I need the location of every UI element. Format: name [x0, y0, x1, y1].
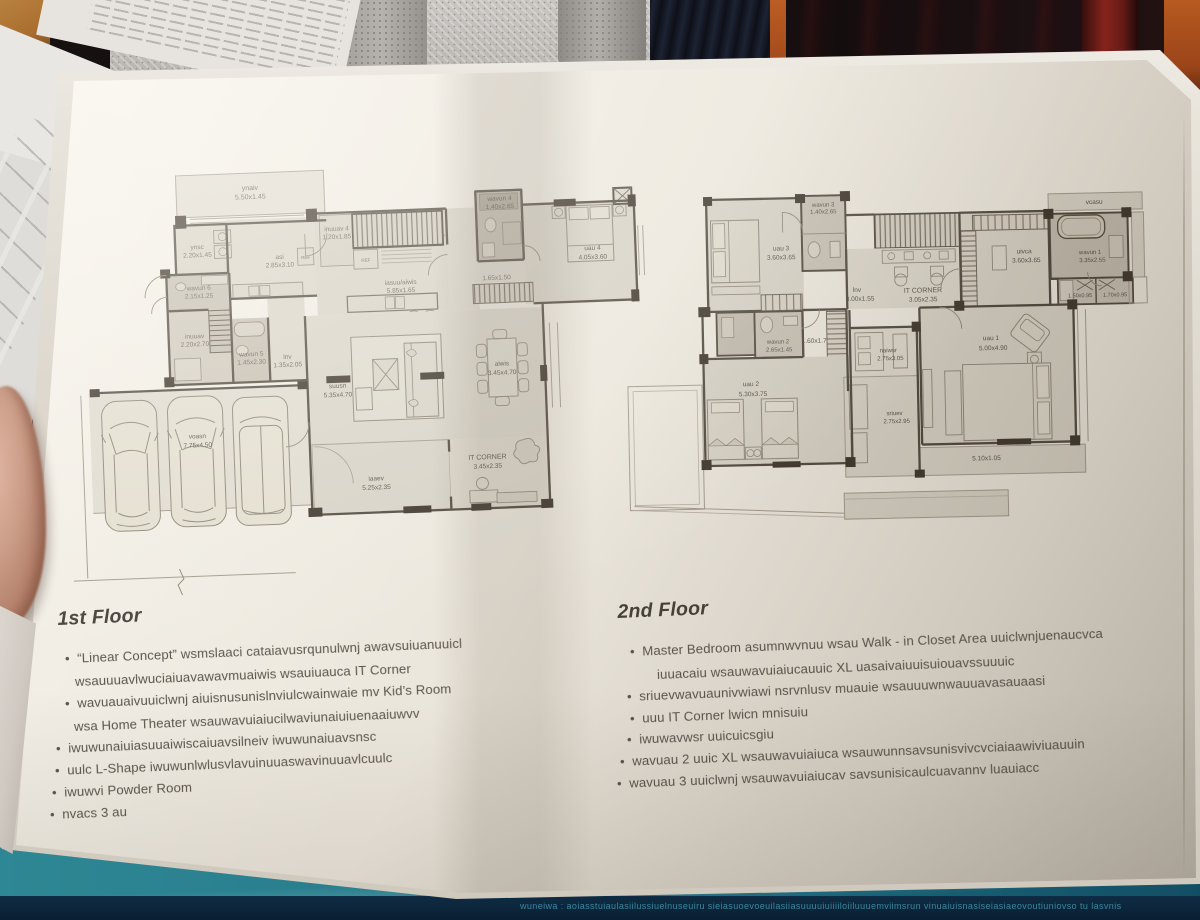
svg-text:suusn: suusn	[329, 383, 347, 391]
svg-text:REF: REF	[361, 258, 370, 263]
svg-text:ynsc: ynsc	[190, 244, 204, 252]
svg-text:3.35x2.55: 3.35x2.55	[1079, 258, 1106, 265]
svg-text:5.10x1.05: 5.10x1.05	[972, 455, 1001, 463]
svg-text:2.20x1.45: 2.20x1.45	[183, 252, 212, 260]
svg-text:4.05x3.60: 4.05x3.60	[578, 253, 607, 261]
svg-text:3.05x2.35: 3.05x2.35	[909, 296, 938, 304]
svg-text:ynaiv: ynaiv	[242, 185, 259, 193]
svg-text:uau 1: uau 1	[983, 335, 1000, 342]
svg-text:5.50x1.45: 5.50x1.45	[235, 193, 266, 201]
svg-text:1.60x1.70: 1.60x1.70	[802, 337, 831, 345]
svg-text:3.00x1.55: 3.00x1.55	[846, 296, 875, 304]
svg-text:uau 3: uau 3	[773, 245, 790, 252]
svg-text:5.25x2.35: 5.25x2.35	[362, 484, 391, 492]
svg-text:uivca: uivca	[1017, 248, 1033, 255]
svg-text:2.65x1.45: 2.65x1.45	[766, 347, 793, 354]
svg-text:lnv: lnv	[853, 287, 862, 294]
svg-text:2.85x3.10: 2.85x3.10	[266, 261, 295, 269]
svg-text:IT CORNER: IT CORNER	[468, 453, 507, 461]
svg-text:1.40x2.65: 1.40x2.65	[485, 203, 514, 211]
svg-text:inuuav: inuuav	[185, 333, 205, 341]
svg-text:5.30x3.75: 5.30x3.75	[739, 391, 768, 399]
svg-text:wavun 4: wavun 4	[486, 195, 512, 203]
svg-text:wavun 6: wavun 6	[186, 285, 212, 293]
svg-text:1.35x2.05: 1.35x2.05	[273, 361, 302, 369]
svg-text:2.75x2.95: 2.75x2.95	[883, 419, 910, 426]
svg-text:iaaev: iaaev	[368, 475, 385, 483]
svg-text:7.75x4.50: 7.75x4.50	[183, 442, 212, 450]
svg-text:5.35x4.70: 5.35x4.70	[324, 391, 353, 399]
svg-text:3.45x4.70: 3.45x4.70	[488, 369, 517, 377]
svg-text:iasuu/aiwis: iasuu/aiwis	[385, 279, 418, 287]
svg-text:vcasu: vcasu	[1086, 199, 1104, 206]
svg-text:wavun 5: wavun 5	[238, 351, 264, 359]
svg-text:uau 4: uau 4	[584, 245, 601, 253]
svg-text:aiwis: aiwis	[495, 360, 510, 368]
svg-text:5.00x4.90: 5.00x4.90	[979, 345, 1008, 353]
svg-text:wavun 2: wavun 2	[766, 339, 790, 346]
svg-text:inuuav 4: inuuav 4	[324, 225, 349, 233]
svg-text:2.75x3.05: 2.75x3.05	[877, 356, 904, 363]
svg-text:lnv: lnv	[283, 354, 292, 361]
svg-text:3.60x3.65: 3.60x3.65	[767, 254, 796, 262]
svg-text:wavun 3: wavun 3	[811, 202, 835, 209]
svg-text:1.45x2.30: 1.45x2.30	[237, 359, 266, 367]
svg-text:2.15x1.25: 2.15x1.25	[185, 293, 214, 301]
svg-text:3.60x3.65: 3.60x3.65	[1012, 257, 1041, 265]
svg-text:uau 2: uau 2	[743, 381, 760, 388]
svg-text:1.50x0.95: 1.50x0.95	[1068, 293, 1092, 300]
svg-text:wavun 1: wavun 1	[1078, 250, 1102, 257]
svg-text:asi: asi	[275, 254, 284, 261]
svg-text:naiwsr: naiwsr	[880, 348, 897, 354]
svg-text:1.70x0.95: 1.70x0.95	[1103, 292, 1127, 299]
svg-text:sriuev: sriuev	[886, 411, 902, 417]
svg-text:1.65x1.50: 1.65x1.50	[482, 274, 511, 282]
svg-text:voasn: voasn	[189, 433, 207, 441]
svg-text:IT CORNER: IT CORNER	[904, 287, 943, 295]
svg-text:1.40x2.65: 1.40x2.65	[810, 209, 837, 216]
svg-text:3.45x2.35: 3.45x2.35	[473, 463, 502, 471]
svg-text:2.20x2.70: 2.20x2.70	[181, 341, 210, 349]
